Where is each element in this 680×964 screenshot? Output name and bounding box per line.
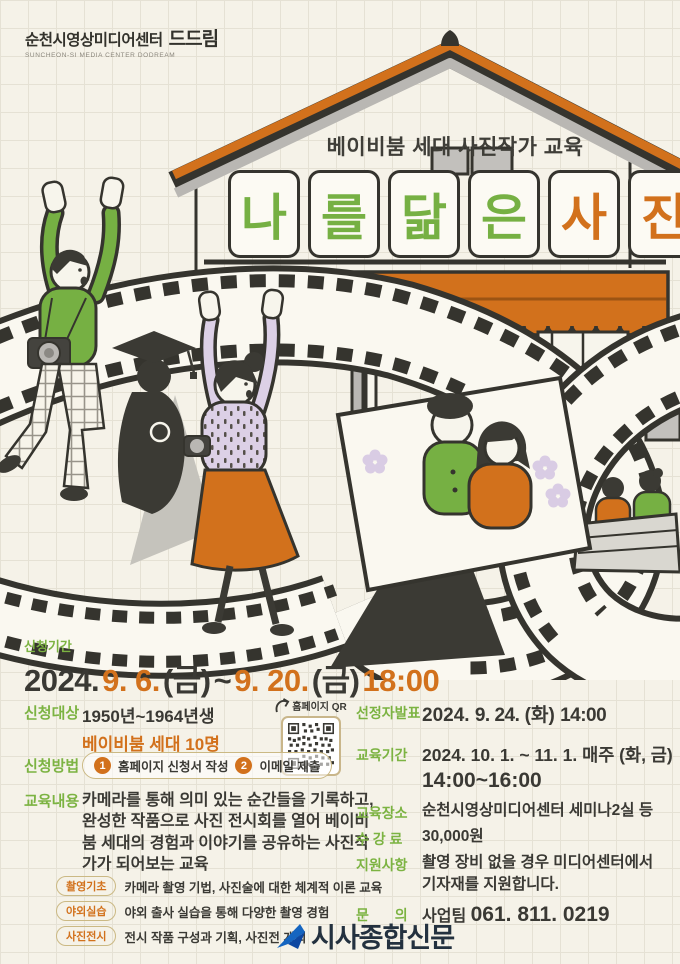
poster-title: 나 를 닮 은 사 진 <box>228 170 680 258</box>
edu-item-text: 카메라 촬영 기법, 사진술에 대한 체계적 이론 교육 <box>124 877 382 896</box>
edu-period: 교육기간 2024. 10. 1. ~ 11. 1. 매주 (화, 금) 14:… <box>356 742 673 793</box>
title-letter: 은 <box>468 170 540 258</box>
announcement: 선정자발표 2024. 9. 24. (화) 14:00 <box>356 700 606 727</box>
apply-period-end-day: (금) <box>312 663 360 698</box>
man-figure <box>0 176 124 501</box>
announcement-label: 선정자발표 <box>356 700 422 727</box>
edu-period-label: 교육기간 <box>356 742 422 793</box>
edu-content: 교육내용 카메라를 통해 의미 있는 순간들을 기록하고, 완성한 작품으로 사… <box>24 790 374 875</box>
logo-mark: 드드림 <box>169 24 218 51</box>
edu-period-year: 2024. <box>422 745 466 765</box>
apply-target: 신청대상 1950년~1964년생 베이비붐 세대 10명 <box>24 702 220 755</box>
title-letter: 를 <box>308 170 380 258</box>
edu-period-weekly: 매주 (화, 금) <box>582 745 673 765</box>
announcement-time: 14:00 <box>560 705 606 726</box>
bench-people <box>574 468 680 572</box>
apply-period-start: 9. 6. <box>102 663 160 698</box>
apply-period-year: 2024. <box>24 663 99 698</box>
curved-arrow-icon <box>275 698 290 713</box>
logo-name-en: SUNCHEON-SI MEDIA CENTER DODREAM <box>25 52 218 59</box>
apply-period-start-day: (금) <box>163 663 211 698</box>
photo-frame <box>338 378 590 590</box>
contact-phone: 061. 811. 0219 <box>471 903 610 926</box>
step-number: 1 <box>94 757 111 774</box>
title-letter: 나 <box>228 170 300 258</box>
apply-period-end: 9. 20. <box>234 663 309 698</box>
edu-period-time: 14:00~16:00 <box>422 769 673 793</box>
watermark: 시사종합신문 <box>276 916 454 955</box>
apply-period-value: 2024.9. 6.(금)~9. 20.(금)18:00 <box>24 655 442 700</box>
support-label: 지원사항 <box>356 852 422 897</box>
graduate-figure <box>112 331 215 565</box>
announcement-day: (화) <box>525 705 555 726</box>
step-text: 홈페이지 신청서 작성 <box>118 756 228 775</box>
fee: 수 강 료 30,000원 <box>356 826 484 849</box>
step-number: 2 <box>235 757 252 774</box>
apply-target-line1: 1950년~1964년생 <box>82 702 220 727</box>
paper-plane-icon <box>276 922 306 950</box>
support-line1: 촬영 장비 없을 경우 미디어센터에서 <box>422 852 653 874</box>
edu-content-label: 교육내용 <box>24 790 82 875</box>
apply-method-label: 신청방법 <box>24 755 82 776</box>
title-letter: 닮 <box>388 170 460 258</box>
fee-label: 수 강 료 <box>356 826 422 849</box>
poster-subtitle: 베이비붐 세대 사진작가 교육 <box>230 131 680 161</box>
watermark-text: 시사종합신문 <box>311 916 454 955</box>
edu-item-badge: 사진전시 <box>56 926 116 946</box>
apply-method-steps: 1 홈페이지 신청서 작성 2 이메일 제출 <box>82 752 332 779</box>
apply-period-time: 18:00 <box>362 663 439 698</box>
edu-place-value: 순천시영상미디어센터 세미나2실 등 <box>422 800 653 823</box>
apply-method: 신청방법 1 홈페이지 신청서 작성 2 이메일 제출 <box>24 752 332 779</box>
film-strip-main <box>0 281 650 668</box>
logo-name-kr: 순천시영상미디어센터 <box>25 28 163 50</box>
apply-target-label: 신청대상 <box>24 702 82 755</box>
film-strip-right <box>515 322 680 663</box>
apply-period-tilde: ~ <box>214 663 232 698</box>
edu-item-badge: 야외실습 <box>56 901 116 921</box>
fee-value: 30,000원 <box>422 826 484 849</box>
edu-item-badge: 촬영기초 <box>56 876 116 896</box>
title-letter: 사 <box>548 170 620 258</box>
step-text: 이메일 제출 <box>259 756 320 775</box>
apply-period-label: 신청기간 <box>24 636 442 655</box>
title-letter: 진 <box>628 170 680 258</box>
edu-place: 교육장소 순천시영상미디어센터 세미나2실 등 <box>356 800 653 823</box>
poster: 순천시영상미디어센터 드드림 SUNCHEON-SI MEDIA CENTER … <box>0 0 680 964</box>
support-line2: 기자재를 지원합니다. <box>422 874 653 896</box>
announcement-date: 9. 24. <box>475 705 520 726</box>
apply-period: 신청기간 2024.9. 6.(금)~9. 20.(금)18:00 <box>24 636 442 700</box>
support: 지원사항 촬영 장비 없을 경우 미디어센터에서 기자재를 지원합니다. <box>356 852 653 897</box>
media-center-logo: 순천시영상미디어센터 드드림 SUNCHEON-SI MEDIA CENTER … <box>25 24 218 59</box>
qr-label: 홈페이지 QR <box>292 698 347 713</box>
woman-figure <box>184 289 298 636</box>
edu-content-desc: 카메라를 통해 의미 있는 순간들을 기록하고, 완성한 작품으로 사진 전시회… <box>82 790 374 875</box>
poster-illustration <box>0 0 680 680</box>
edu-place-label: 교육장소 <box>356 800 422 823</box>
roof <box>174 30 680 193</box>
edu-item: 촬영기초 카메라 촬영 기법, 사진술에 대한 체계적 이론 교육 <box>56 876 382 896</box>
announcement-year: 2024. <box>422 705 470 726</box>
edu-period-range: 10. 1. ~ 11. 1. <box>471 745 578 765</box>
